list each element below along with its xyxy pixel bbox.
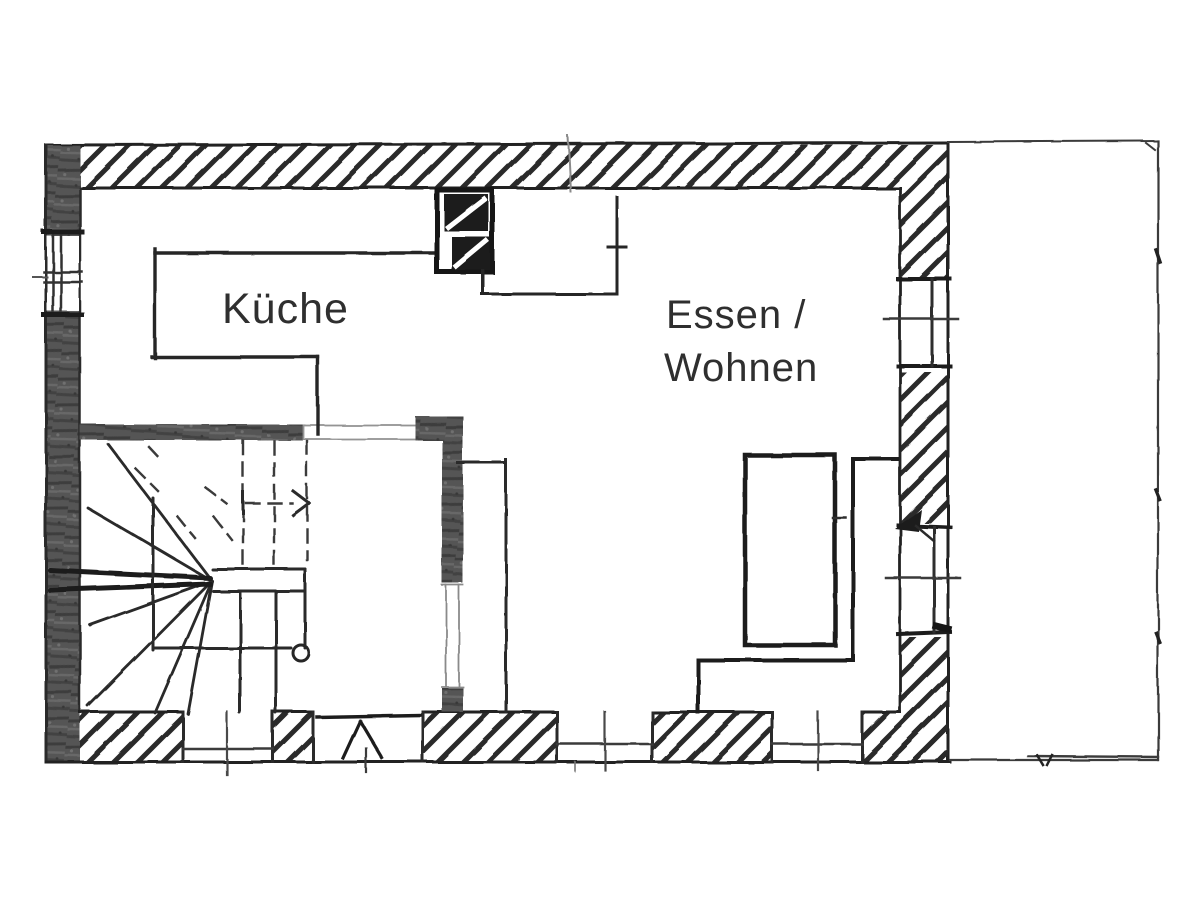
- kitchen-counter: [482, 197, 626, 294]
- column-circle-symbol: [293, 645, 309, 661]
- terrace-outline: [948, 141, 1160, 765]
- left-wall: [33, 145, 82, 762]
- stair-side-wall: [442, 416, 463, 583]
- bottom-window-1: [183, 712, 273, 775]
- stair-walking-line-dashed: [136, 441, 307, 564]
- floor-plan-page: Küche Essen / Wohnen: [0, 0, 1200, 900]
- door-swing-icon: [343, 721, 382, 772]
- corner-partition: [698, 459, 897, 712]
- stair-top-wall: [80, 424, 305, 440]
- dining-living-label-line2: Wohnen: [664, 346, 818, 390]
- left-wall-window: [33, 232, 82, 315]
- staircase: [50, 441, 309, 714]
- thin-partition: [458, 460, 506, 712]
- interior-walls: [80, 416, 506, 712]
- bottom-wall: [46, 712, 950, 775]
- living-area-fixtures: [698, 455, 897, 712]
- floor-plan-drawing: Küche Essen / Wohnen: [0, 0, 1200, 900]
- top-wall: [46, 136, 948, 192]
- room-labels: Küche Essen / Wohnen: [222, 285, 818, 390]
- kitchen-divider-line: [152, 249, 437, 434]
- chimney-block-icon: [437, 190, 492, 272]
- dining-living-label-line1: Essen /: [666, 293, 806, 337]
- plan-sketch-layer: [33, 136, 1160, 775]
- stair-treads-solid: [50, 444, 305, 714]
- furniture-rectangle: [745, 455, 835, 645]
- right-wall: [884, 143, 960, 762]
- stair-top-wall-opening: [303, 425, 417, 439]
- stair-door-opening: [442, 585, 463, 687]
- kitchen-label: Küche: [222, 285, 349, 333]
